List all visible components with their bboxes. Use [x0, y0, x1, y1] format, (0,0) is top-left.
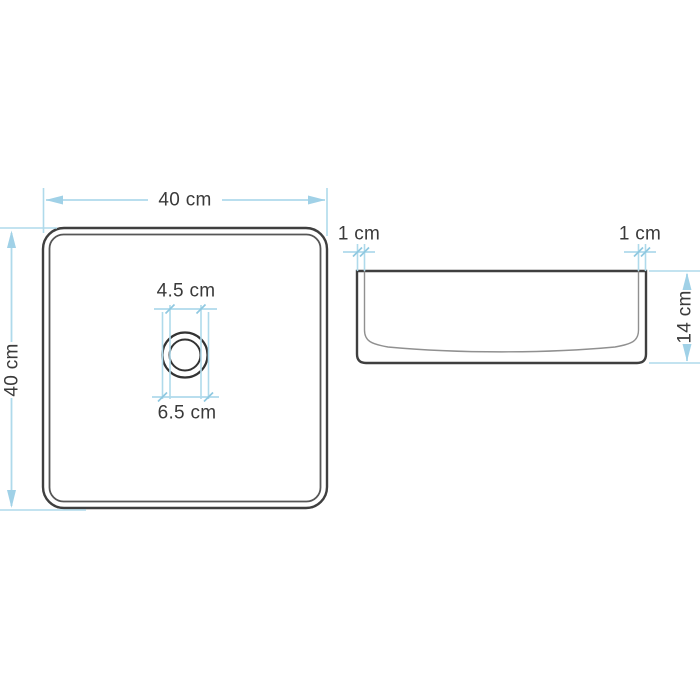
drain-inner-circle [170, 340, 201, 371]
arrow-up-icon [7, 231, 16, 249]
side-view: 1 cm 1 cm 14 cm [338, 224, 700, 364]
arrow-down-icon [7, 490, 16, 508]
arrow-left-icon [46, 196, 64, 205]
top-view: 40 cm 40 cm 4.5 cm [0, 188, 327, 510]
top-view-inner-rim [50, 235, 321, 502]
top-view-outer-rim [43, 228, 327, 508]
dim-drain-outer-label: 6.5 cm [158, 403, 217, 424]
dim-side-height: 14 cm [649, 271, 700, 363]
sink-dimension-drawing: 40 cm 40 cm 4.5 cm [0, 0, 700, 700]
side-view-inner-profile [365, 271, 639, 352]
arrow-right-icon [308, 196, 326, 205]
dim-wall-left: 1 cm [338, 224, 380, 272]
dim-wall-right-label: 1 cm [619, 224, 661, 245]
dim-left-height-label: 40 cm [2, 343, 23, 396]
drawing-svg: 40 cm 40 cm 4.5 cm [0, 0, 700, 700]
dim-side-height-label: 14 cm [675, 290, 696, 343]
side-view-outer-profile [357, 271, 646, 363]
arrow-up-icon [683, 273, 692, 291]
dim-drain-outer: 6.5 cm [152, 312, 219, 424]
dim-drain-inner-label: 4.5 cm [157, 281, 216, 302]
dim-wall-left-label: 1 cm [338, 224, 380, 245]
dim-wall-right: 1 cm [619, 224, 661, 272]
dim-top-width-label: 40 cm [158, 190, 211, 211]
arrow-down-icon [683, 344, 692, 362]
